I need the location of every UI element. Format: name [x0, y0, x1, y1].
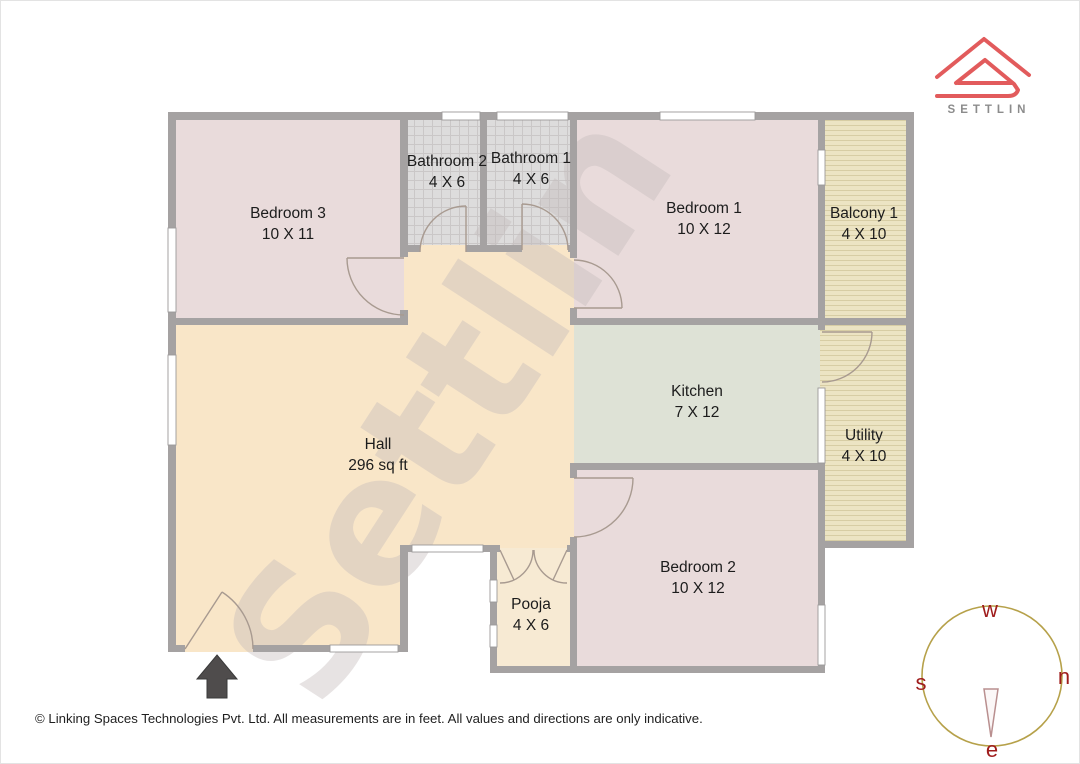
compass: w n e s — [916, 597, 1071, 762]
bathroom1-size: 4 X 6 — [513, 171, 549, 188]
bedroom1-size: 10 X 12 — [677, 221, 730, 238]
settlin-logo: SETTLIN — [937, 39, 1030, 116]
utility-label: Utility — [845, 427, 883, 444]
compass-top: w — [981, 597, 998, 622]
compass-left: s — [916, 670, 927, 695]
pooja-size: 4 X 6 — [513, 617, 549, 634]
floor-plan-canvas: Settlin — [0, 0, 1080, 764]
balcony1-label: Balcony 1 — [830, 205, 898, 222]
balcony1-size: 4 X 10 — [842, 226, 887, 243]
pooja-label: Pooja — [511, 596, 551, 613]
kitchen-label: Kitchen — [671, 383, 723, 400]
kitchen-size: 7 X 12 — [675, 404, 720, 421]
bedroom3-size: 10 X 11 — [262, 226, 314, 243]
bedroom3-label: Bedroom 3 — [250, 205, 326, 222]
utility-size: 4 X 10 — [842, 448, 887, 465]
entrance-arrow-icon — [197, 655, 237, 698]
hall-size: 296 sq ft — [348, 457, 408, 474]
bedroom2-label: Bedroom 2 — [660, 559, 736, 576]
bedroom1-label: Bedroom 1 — [666, 200, 742, 217]
footer-disclaimer: © Linking Spaces Technologies Pvt. Ltd. … — [35, 711, 703, 726]
bathroom2-label: Bathroom 2 — [407, 153, 487, 170]
compass-right: n — [1058, 664, 1070, 689]
brand-name: SETTLIN — [948, 104, 1031, 116]
compass-needle-icon — [984, 689, 998, 737]
compass-bottom: e — [986, 737, 998, 762]
compass-letters: w n e s — [916, 597, 1071, 762]
bathroom1-label: Bathroom 1 — [491, 150, 571, 167]
floor-plan-page: Settlin — [0, 0, 1080, 764]
settlin-logo-roof-icon — [937, 39, 1029, 96]
bedroom2-size: 10 X 12 — [671, 580, 724, 597]
hall-label: Hall — [365, 436, 392, 453]
bathroom2-size: 4 X 6 — [429, 174, 465, 191]
